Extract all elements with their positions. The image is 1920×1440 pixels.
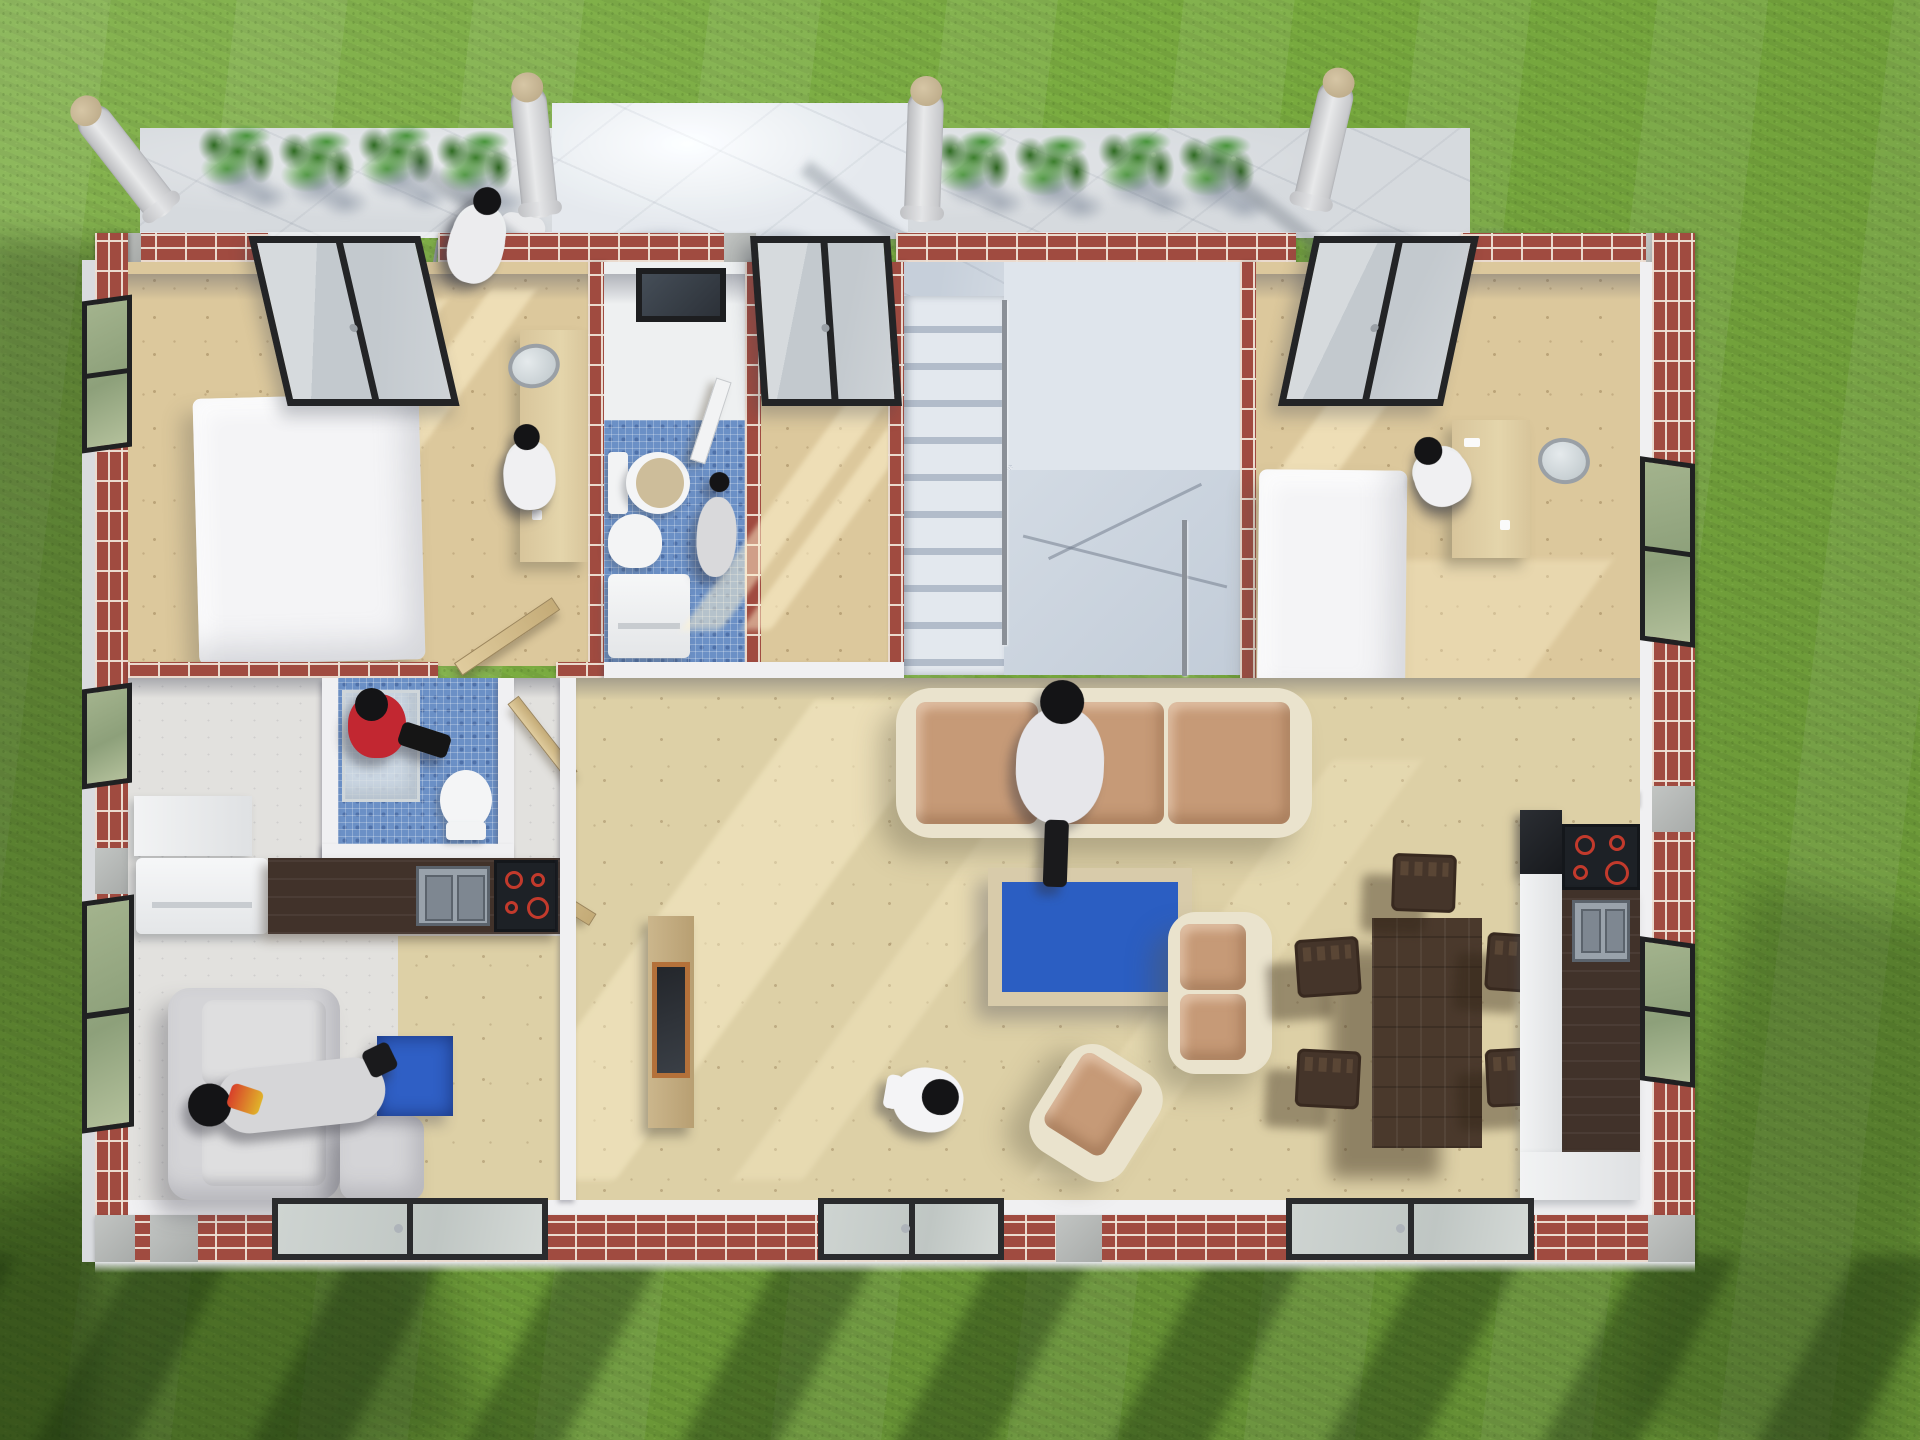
person-living-walker [876,1043,980,1159]
floorplan-render [0,0,1920,1440]
person-bathroom1-stander [691,471,743,585]
person-legs [1043,819,1070,887]
person-terrace-sitter [434,180,521,296]
person-studio-bath-walker [344,688,454,780]
person-head [709,472,730,493]
person-bedroom1-desk-sitter [497,422,561,518]
person-bedroom2-desk-sitter [1393,424,1486,523]
person-sofa-sitter [1000,678,1118,907]
person-legs [397,721,453,759]
person-torso [694,496,739,579]
person-head [355,688,388,721]
people [0,0,1920,1440]
person-studio-lier [183,1034,400,1167]
